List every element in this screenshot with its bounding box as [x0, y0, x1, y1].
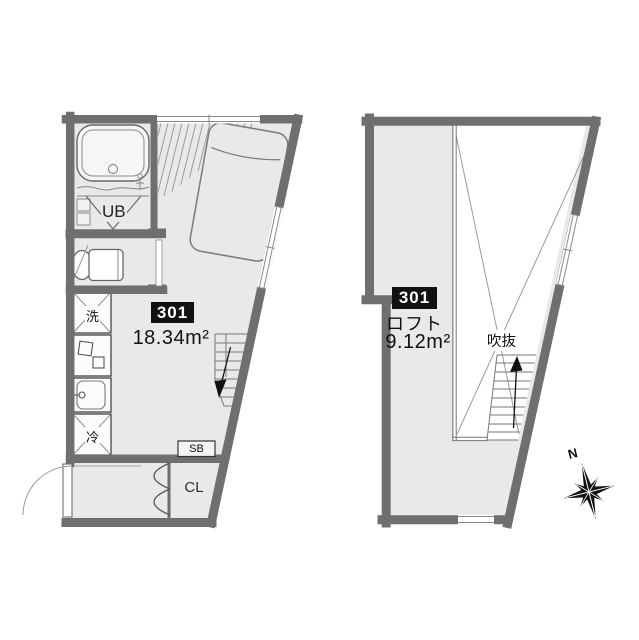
sink-icon [73, 378, 111, 412]
unit-number-badge-loft: 301 [392, 287, 437, 309]
floor-plan-canvas: 301 18.34m² UB 洗 冷 SB CL 301 ロフト 9.12m² … [0, 0, 639, 640]
fridge-label: 冷 [85, 427, 100, 446]
void-area [454, 125, 586, 440]
toilet-door-panel [156, 240, 162, 286]
bathtub-icon [77, 125, 149, 181]
window-top [157, 115, 260, 124]
unit-number-badge-room: 301 [151, 302, 194, 324]
loft-window-bottom [458, 515, 494, 525]
closet-label: CL [180, 479, 208, 496]
loft-area-label: 9.12m² [378, 331, 458, 354]
stove-icon [73, 335, 111, 376]
washer-label: 洗 [85, 306, 100, 325]
unit-bath-label: UB [101, 202, 127, 222]
void-label: 吹抜 [486, 330, 517, 351]
room-area-label: 18.34m² [126, 327, 216, 350]
compass-rose-icon [557, 457, 621, 526]
shoe-box-label: SB [180, 443, 213, 455]
